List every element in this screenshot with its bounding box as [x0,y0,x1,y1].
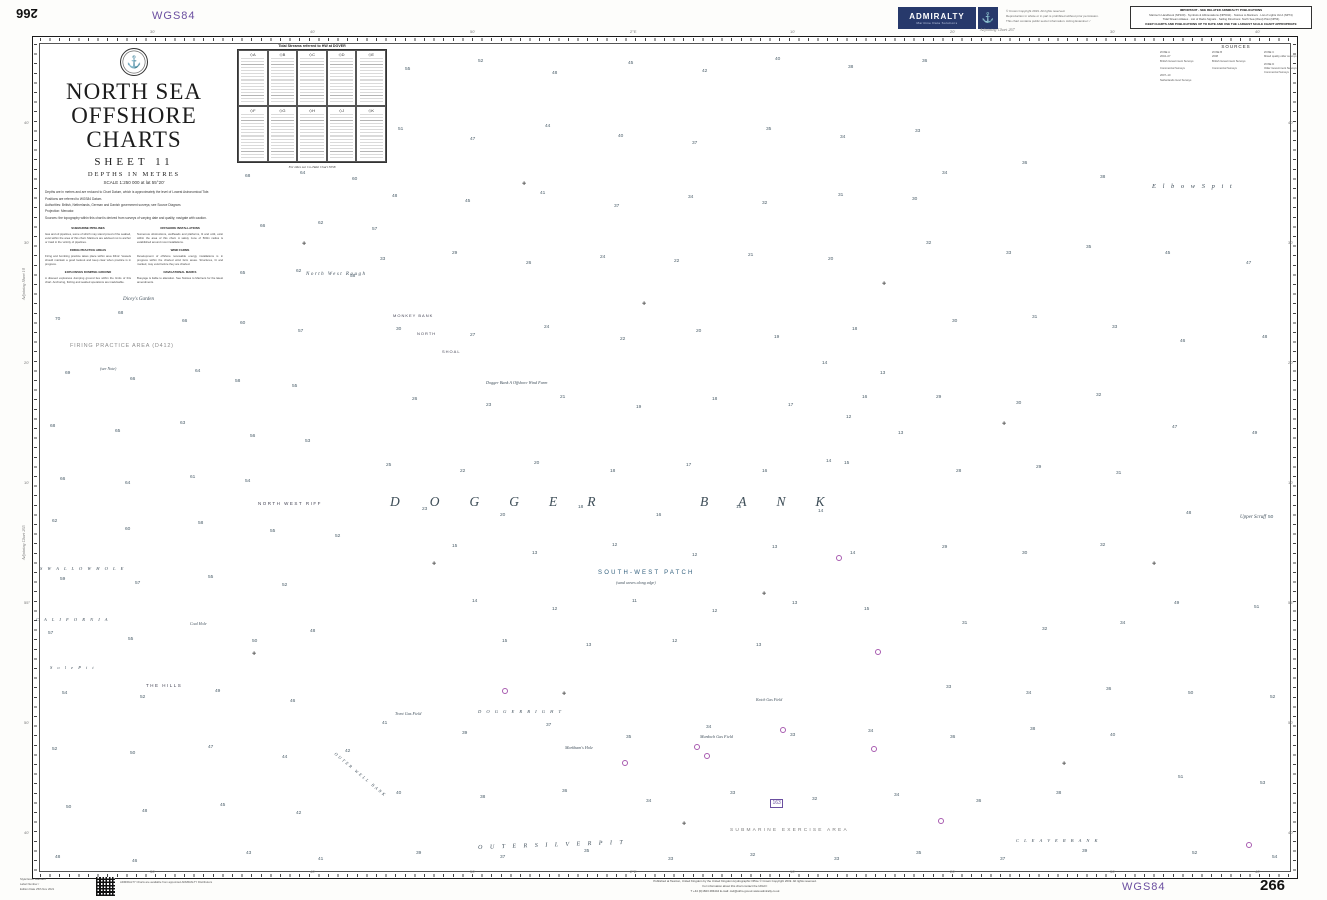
sounding: 14 [472,600,477,605]
note-block: EXPLOSIVES DUMPING GROUNDA disused explo… [45,270,131,284]
wreck-symbol: ✚ [252,652,256,657]
sounding: 53 [1260,782,1265,787]
note-block: SUBMARINE PIPELINESGas and oil pipelines… [45,226,131,244]
sounding: 57 [298,330,303,335]
platform-symbol [502,688,508,694]
geo-label: E l b o w S p i t [1152,184,1234,191]
sounding: 52 [1270,696,1275,701]
publication-line: T +44 (0)1823 484444 E-mail: csd@ukho.go… [570,889,900,894]
sounding: 12 [692,554,697,559]
sounding: 20 [534,462,539,467]
sounding: 37 [692,142,697,147]
sounding: 14 [826,460,831,465]
sounding: 34 [942,172,947,177]
sounding: 40 [618,135,623,140]
sounding: 52 [1192,852,1197,857]
sounding: 58 [198,522,203,527]
geo-label: S o l e P i t [50,666,96,671]
sounding: 14 [822,362,827,367]
sounding: 48 [552,72,557,77]
tidal-cell-rows [300,114,323,160]
border-label-right: 50' [1288,720,1293,725]
border-ticks-bottom [40,874,1290,877]
sounding: 55 [208,576,213,581]
sounding: 40 [1110,734,1115,739]
sounding: 20 [828,258,833,263]
tidal-cell: ◇A [238,50,268,106]
sounding: 46 [1180,340,1185,345]
sounding: 39 [1082,850,1087,855]
border-label-bottom: 30' [150,869,155,874]
sounding: 42 [296,812,301,817]
sounding: 45 [220,804,225,809]
tidal-table-footer: For tides see Co-Tidal Chart 5058 [237,165,387,169]
sounding: 45 [628,62,633,67]
sounding: 61 [190,476,195,481]
sounding: 36 [976,800,981,805]
border-label-right: 10' [1288,480,1293,485]
border-label-bottom: 20' [950,869,955,874]
sounding: 69 [65,372,70,377]
sounding: 33 [915,130,920,135]
sounding: 62 [52,520,57,525]
sounding: 12 [846,416,851,421]
sounding: 13 [756,644,761,649]
sounding: 31 [962,622,967,627]
sounding: 47 [208,746,213,751]
tidal-cell: ◇H [297,106,327,162]
sounding: 50 [66,806,71,811]
wreck-symbol: ✚ [682,822,686,827]
sounding: 34 [868,730,873,735]
sounding: 50 [1188,692,1193,697]
border-label-top: 40' [310,29,315,34]
sounding: 50 [1268,516,1273,521]
sounding: 55 [270,530,275,535]
sounding: 38 [1030,728,1035,733]
sounding: 55 [128,638,133,643]
sounding: 41 [382,722,387,727]
sounding: 47 [1246,262,1251,267]
geo-label: North West Rough [306,272,366,277]
geo-label: Dicey's Garden [123,297,154,302]
border-label-bottom: 10' [790,869,795,874]
tidal-station-diamond: ◇H [309,108,315,113]
note-heading: NAVIGATIONAL MARKS [137,270,223,274]
sounding: 45 [465,200,470,205]
sounding: 30 [952,320,957,325]
sounding: 54 [62,692,67,697]
tidal-station-diamond: ◇F [250,108,256,113]
sounding: 57 [135,582,140,587]
chart-page: 266 WGS84 ADMIRALTY Maritime Data Soluti… [0,0,1327,900]
border-label-bottom: 30' [1110,869,1115,874]
sounding: 47 [1172,426,1177,431]
border-label-left: 40' [24,830,29,835]
qr-code [96,877,115,896]
sounding: 66 [182,320,187,325]
sounding: 28 [956,470,961,475]
platform-symbol [780,727,786,733]
sounding: 15 [864,608,869,613]
geo-label: (see Note) [100,367,116,371]
geo-label: NORTH WEST RIFF [258,502,322,507]
sounding: 15 [844,462,849,467]
note-block: OFFSHORE INSTALLATIONSNumerous obstructi… [137,226,223,244]
title-block: ⚓ NORTH SEA OFFSHORE CHARTS SHEET 11 DEP… [45,48,223,288]
sounding: 32 [750,854,755,859]
border-label-top: 30' [150,29,155,34]
distributor-note: ADMIRALTY Charts are available from appo… [120,880,240,885]
sounding: 68 [118,312,123,317]
sounding: 51 [398,128,403,133]
sounding: 36 [562,790,567,795]
sounding: 48 [142,810,147,815]
sounding: 66 [60,478,65,483]
sounding: 66 [130,378,135,383]
border-label-right: 20' [1288,360,1293,365]
geo-label: DOGGER [390,495,626,509]
sounding: 15 [452,545,457,550]
sounding: 17 [788,404,793,409]
border-label-top: 2°E [630,29,637,34]
note-heading: SUBMARINE PIPELINES [45,226,131,230]
sounding: 32 [762,202,767,207]
sounding: 33 [834,858,839,863]
note-heading: EXPLOSIVES DUMPING GROUND [45,270,131,274]
sounding: 35 [626,736,631,741]
tidal-station-diamond: ◇J [339,108,344,113]
sounding: 42 [345,750,350,755]
sounding: 41 [318,858,323,863]
sounding: 26 [412,398,417,403]
sounding: 38 [1056,792,1061,797]
tidal-cell-rows [330,58,353,104]
anchor-icon: ⚓ [978,7,998,29]
sounding: 22 [460,470,465,475]
geo-label: Adjoining Chart 265 [22,525,26,560]
sources-column: ZONE B2008British Government SurveysComm… [1212,51,1260,83]
sounding: 11 [632,600,637,605]
sounding: 70 [55,318,60,323]
sounding: 12 [612,544,617,549]
geo-label: S W A L L O W H O L E [40,567,125,572]
sounding: 46 [132,860,137,865]
sounding: 47 [470,138,475,143]
geo-label: C A L I F O R N I A [36,618,110,623]
border-label-left: 20' [24,360,29,365]
sounding: 33 [1006,252,1011,257]
sounding: 16 [762,470,767,475]
tidal-station-diamond: ◇K [368,108,374,113]
tidal-cell-rows [300,58,323,104]
geo-label: Ketch Gas Field [756,698,782,702]
sounding: 68 [50,425,55,430]
sounding: 64 [195,370,200,375]
sounding: 62 [296,270,301,275]
sounding: 33 [1112,326,1117,331]
sounding: 31 [1032,316,1037,321]
sounding: 12 [672,640,677,645]
sounding: 34 [840,136,845,141]
geo-label: C L E A V E R B A N K [1016,839,1100,844]
wreck-symbol: ✚ [1002,422,1006,427]
sounding: 36 [1022,162,1027,167]
sounding: 34 [646,800,651,805]
geo-label: Coal Hole [190,622,207,626]
chart-number-bottom: 266 [1260,877,1285,894]
platform-symbol [704,753,710,759]
sounding: 32 [926,242,931,247]
sounding: 36 [950,736,955,741]
sounding: 27 [470,334,475,339]
sounding: 19 [774,336,779,341]
admiralty-badge-subtitle: Maritime Data Solutions [916,21,957,25]
sounding: 33 [790,734,795,739]
border-label-top: 20' [950,29,955,34]
tidal-cell: ◇F [238,106,268,162]
sounding: 21 [560,396,565,401]
platform-symbol [875,649,881,655]
sounding: 50 [130,752,135,757]
datum-label-bottom: WGS84 [1122,881,1166,893]
important-footer: KEEP CHARTS AND PUBLICATIONS UP TO DATE … [1133,22,1309,27]
geo-label: SUBMARINE EXERCISE AREA [730,829,849,834]
tidal-cell-rows [271,58,294,104]
chart-notes-columns: SUBMARINE PIPELINESGas and oil pipelines… [45,226,223,288]
wreck-symbol: ✚ [882,282,886,287]
edition-line: Edition Date 25th Nov 2021 [20,887,92,892]
platform-symbol [1246,842,1252,848]
notes-column-left: SUBMARINE PIPELINESGas and oil pipelines… [45,226,131,288]
scale-label: SCALE 1:250 000 at lat 55°20' [45,180,223,185]
geo-label: BANK [700,495,855,509]
geo-label: Dogger Bank A Offshore Wind Farm [486,381,547,385]
border-label-bottom: 40' [310,869,315,874]
geo-label: FIRING PRACTICE AREA (D412) [70,344,174,350]
notes-column-right: OFFSHORE INSTALLATIONSNumerous obstructi… [137,226,223,288]
sounding: 57 [372,228,377,233]
geo-label: SOUTH-WEST PATCH [598,570,695,576]
tidal-table-title: Tidal Streams referred to HW at DOVER [237,44,387,48]
sounding: 32 [812,798,817,803]
sounding: 48 [1262,336,1267,341]
sounding: 34 [706,726,711,731]
sounding: 48 [392,195,397,200]
border-label-bottom: 50' [470,869,475,874]
note-heading: FIRING PRACTICE AREAS [45,248,131,252]
sources-line: Commercial Surveys [1212,67,1260,71]
note-heading: WIND FARMS [137,248,223,252]
sounding: 30 [1022,552,1027,557]
geo-label: THE HILLS [146,684,182,689]
sounding: 19 [636,406,641,411]
sounding: 17 [686,464,691,469]
tidal-station-diamond: ◇C [309,52,315,57]
sounding: 13 [532,552,537,557]
sounding: 32 [1096,394,1101,399]
sounding: 63 [180,422,185,427]
sounding: 18 [852,328,857,333]
wreck-symbol: ✚ [562,692,566,697]
admiralty-badge: ADMIRALTY Maritime Data Solutions ⚓ [898,7,998,29]
sounding: 22 [620,338,625,343]
tidal-cell: ◇G [268,106,298,162]
sounding: 53 [305,440,310,445]
sounding: 46 [290,700,295,705]
sounding: 57 [48,632,53,637]
sounding: 39 [462,732,467,737]
border-label-left: 40' [24,120,29,125]
border-label-left: 50' [24,720,29,725]
sounding: 48 [1186,512,1191,517]
chart-title-line2: OFFSHORE CHARTS [45,104,223,152]
sounding: 65 [240,272,245,277]
sounding: 21 [748,254,753,259]
sounding: 34 [1026,692,1031,697]
sounding: 37 [500,856,505,861]
border-label-right: 40' [1288,120,1293,125]
note-block: NAVIGATIONAL MARKSBuoyage is liable to a… [137,270,223,284]
sounding: 24 [544,326,549,331]
sounding: 38 [480,796,485,801]
tidal-station-diamond: ◇D [339,52,345,57]
border-label-top: 10' [790,29,795,34]
border-label-top: 50' [470,29,475,34]
border-label-top: 30' [1110,29,1115,34]
geo-label: Adjoining Chart 267 [980,28,1015,32]
sounding: 15 [502,640,507,645]
ukho-crest-icon: ⚓ [120,48,148,76]
sounding: 31 [838,194,843,199]
wreck-symbol: ✚ [302,242,306,247]
sounding: 65 [115,430,120,435]
geo-label: Trent Gas Field [395,712,421,716]
sounding: 13 [586,644,591,649]
sounding: 13 [880,372,885,377]
sources-line: Netherlands Govt Surveys [1160,79,1208,83]
sounding: 60 [240,322,245,327]
sounding: 12 [712,610,717,615]
sounding: 49 [1174,602,1179,607]
wreck-symbol: ✚ [522,182,526,187]
border-label-right: 40' [1288,830,1293,835]
wreck-symbol: ✚ [432,562,436,567]
sounding: 48 [55,856,60,861]
sounding: 26 [526,262,531,267]
sounding: 60 [352,178,357,183]
sounding: 20 [500,514,505,519]
note-heading: OFFSHORE INSTALLATIONS [137,226,223,230]
sounding: 66 [260,225,265,230]
tidal-cell: ◇D [327,50,357,106]
sounding: 13 [792,602,797,607]
inner-neatline [39,43,1291,872]
sounding: 22 [674,260,679,265]
chart-notes-paragraph: Depths are in metres and are reduced to … [45,190,223,220]
sounding: 31 [1116,472,1121,477]
sounding: 40 [396,792,401,797]
sources-column: ZONE A2004–07British Government SurveysC… [1160,51,1208,83]
tidal-cell-rows [271,114,294,160]
border-label-left: 55° [24,600,30,605]
sounding: 29 [942,546,947,551]
publication-note: Published at Taunton, United Kingdom by … [570,879,900,894]
important-lines: Mariner's Handbook (NP100) · Symbols & A… [1133,13,1309,22]
sounding: 29 [452,252,457,257]
sounding: 56 [250,435,255,440]
tidal-cell-rows [241,58,264,104]
sounding: 29 [1036,466,1041,471]
border-label-left: 30' [24,240,29,245]
wreck-symbol: ✚ [1062,762,1066,767]
tidal-cell-rows [330,114,353,160]
sounding: 34 [688,196,693,201]
sounding: 30 [396,328,401,333]
sounding: 32 [1042,628,1047,633]
note-block: WIND FARMSDevelopment of offshore renewa… [137,248,223,266]
note-line: Authorities: British, Netherlands, Germa… [45,203,223,208]
sounding: 18 [610,470,615,475]
sounding: 33 [668,858,673,863]
sounding: 25 [386,464,391,469]
note-block: FIRING PRACTICE AREASFiring and bombing … [45,248,131,266]
geo-label: (sand waves along edge) [616,581,656,585]
tidal-cell-rows [360,58,383,104]
sounding: 16 [656,514,661,519]
sounding: 40 [775,58,780,63]
sounding: 52 [478,60,483,65]
sounding: 37 [1000,858,1005,863]
sounding: 39 [416,852,421,857]
sources-title: SOURCES [1160,44,1312,49]
sounding: 37 [614,205,619,210]
border-ticks-right [1293,44,1296,871]
geo-label: Markham's Hole [565,746,593,750]
sounding: 68 [245,175,250,180]
geo-label: Adjoining Sheet 10 [22,268,26,300]
note-line: Projection: Mercator. [45,209,223,214]
platform-symbol [622,760,628,766]
tidal-cell: ◇E [356,50,386,106]
sounding: 44 [545,125,550,130]
sounding: 49 [1252,432,1257,437]
sounding: 51 [1178,776,1183,781]
wreck-symbol: ✚ [1152,562,1156,567]
sounding: 33 [380,258,385,263]
tidal-cell-rows [241,114,264,160]
sources-column: ZONE CMixed quality older surveysZONE DO… [1264,51,1312,83]
sounding: 51 [1254,606,1259,611]
sounding: 59 [60,578,65,583]
sounding: 64 [300,172,305,177]
tidal-station-diamond: ◇A [250,52,256,57]
platform-symbol [836,555,842,561]
note-line: Positions are referred to WGS84 Datum. [45,197,223,202]
platform-symbol [694,744,700,750]
depths-label: DEPTHS IN METRES [45,171,223,178]
wreck-symbol: ✚ [762,592,766,597]
sounding: 23 [486,404,491,409]
sounding: 64 [125,482,130,487]
sounding: 34 [894,794,899,799]
sounding: 41 [540,192,545,197]
border-label-bottom: 2°E [630,869,637,874]
sounding: 36 [922,60,927,65]
border-ticks-top [40,38,1290,41]
sounding: 38 [1100,176,1105,181]
tidal-cell: ◇B [268,50,298,106]
